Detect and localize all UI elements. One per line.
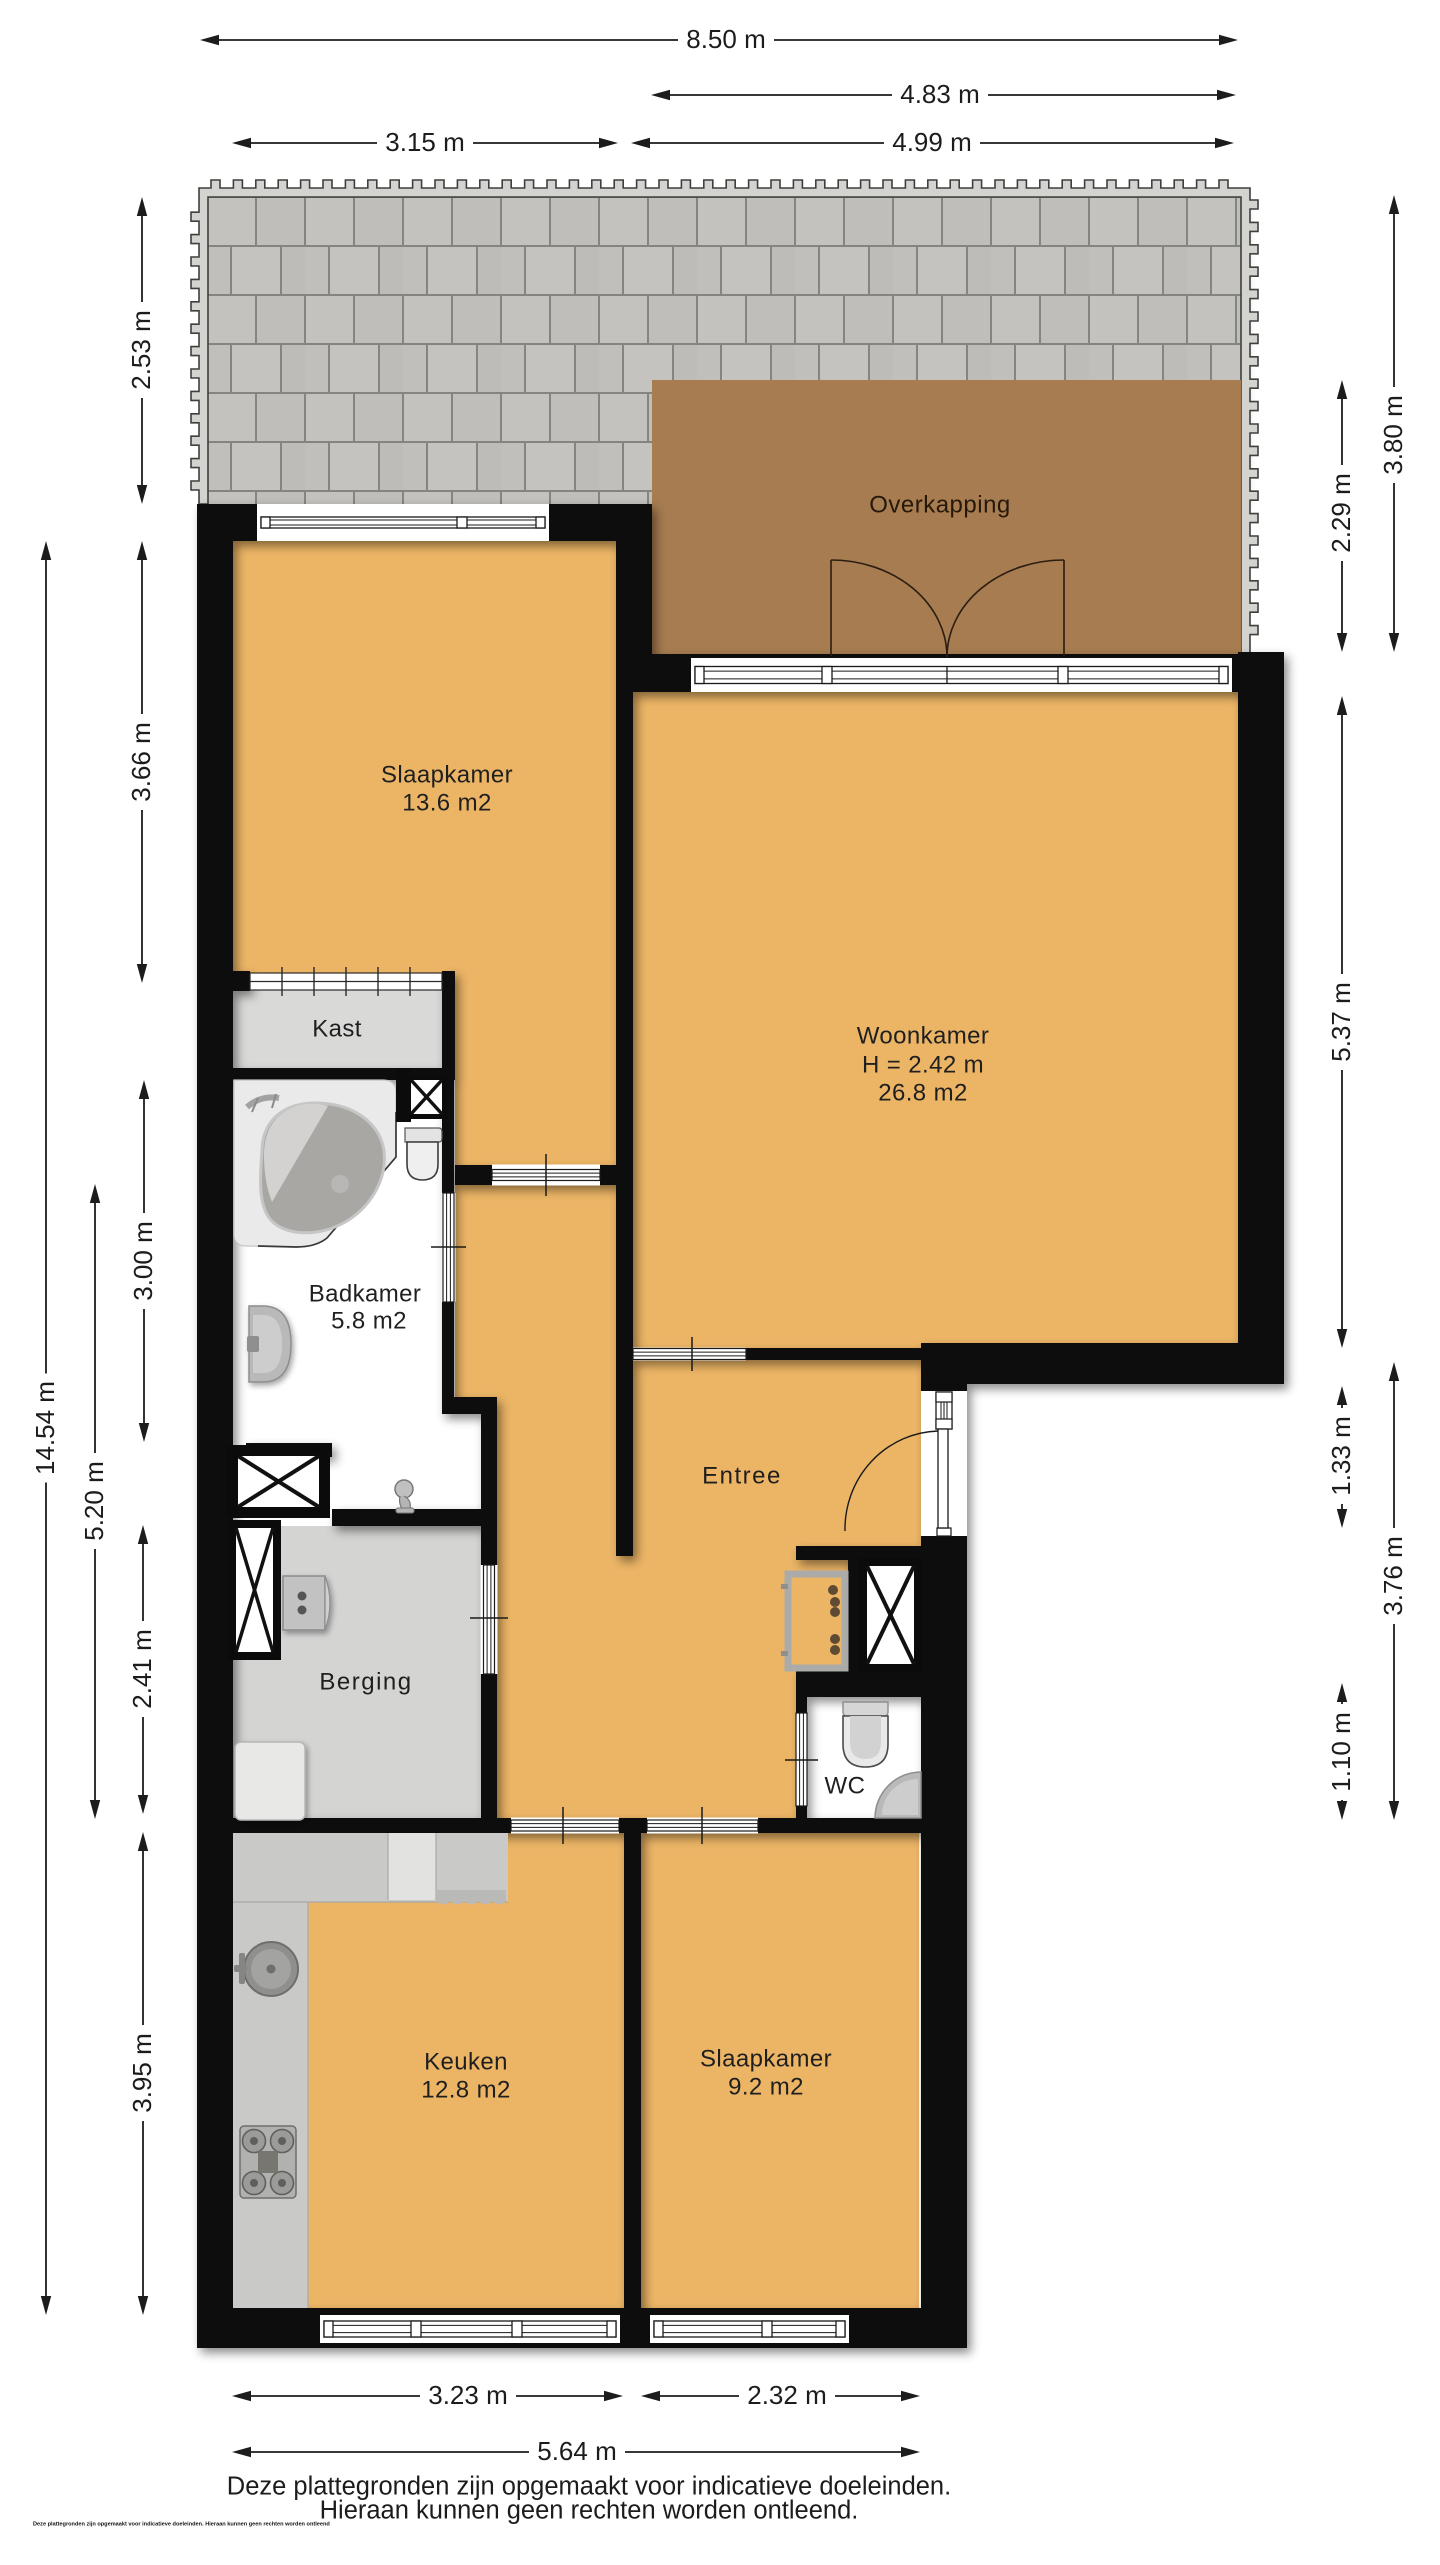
svg-text:5.20 m: 5.20 m (79, 1461, 109, 1541)
svg-text:5.37 m: 5.37 m (1326, 982, 1356, 1062)
svg-text:9.2 m2: 9.2 m2 (728, 2073, 804, 2100)
svg-text:4.99 m: 4.99 m (892, 127, 972, 157)
svg-text:Woonkamer: Woonkamer (857, 1022, 990, 1049)
svg-text:5.64 m: 5.64 m (537, 2436, 617, 2466)
svg-text:H = 2.42 m: H = 2.42 m (862, 1051, 984, 1078)
svg-text:2.32 m: 2.32 m (747, 2380, 827, 2410)
svg-text:4.83 m: 4.83 m (900, 79, 980, 109)
svg-text:Overkapping: Overkapping (869, 491, 1011, 518)
svg-text:14.54 m: 14.54 m (30, 1381, 60, 1475)
svg-text:Slaapkamer: Slaapkamer (700, 2045, 832, 2072)
svg-text:2.53 m: 2.53 m (126, 310, 156, 390)
svg-text:2.29 m: 2.29 m (1326, 473, 1356, 553)
svg-text:8.50 m: 8.50 m (686, 24, 766, 54)
svg-text:13.6 m2: 13.6 m2 (402, 789, 492, 816)
svg-text:Berging: Berging (319, 1668, 412, 1695)
svg-text:3.00 m: 3.00 m (128, 1221, 158, 1301)
svg-text:Keuken: Keuken (424, 2048, 508, 2075)
svg-text:Entree: Entree (702, 1462, 782, 1489)
svg-text:3.76 m: 3.76 m (1378, 1536, 1408, 1616)
svg-text:Hieraan kunnen geen rechten wo: Hieraan kunnen geen rechten worden ontle… (320, 2497, 859, 2525)
svg-text:1.33 m: 1.33 m (1326, 1416, 1356, 1496)
svg-text:WC: WC (825, 1772, 866, 1799)
svg-text:3.23 m: 3.23 m (428, 2380, 508, 2410)
svg-text:3.15 m: 3.15 m (385, 127, 465, 157)
svg-text:Slaapkamer: Slaapkamer (381, 761, 513, 788)
svg-text:Deze plattegronden zijn opgema: Deze plattegronden zijn opgemaakt voor i… (33, 2521, 330, 2527)
svg-text:3.95 m: 3.95 m (127, 2033, 157, 2113)
svg-text:12.8 m2: 12.8 m2 (421, 2076, 511, 2103)
svg-text:5.8 m2: 5.8 m2 (331, 1307, 407, 1334)
svg-text:3.80 m: 3.80 m (1378, 395, 1408, 475)
svg-text:3.66 m: 3.66 m (126, 722, 156, 802)
svg-text:Badkamer: Badkamer (309, 1280, 422, 1307)
svg-text:Kast: Kast (312, 1015, 362, 1042)
svg-text:2.41 m: 2.41 m (127, 1629, 157, 1709)
svg-text:26.8 m2: 26.8 m2 (878, 1079, 968, 1106)
svg-text:1.10 m: 1.10 m (1326, 1712, 1356, 1792)
